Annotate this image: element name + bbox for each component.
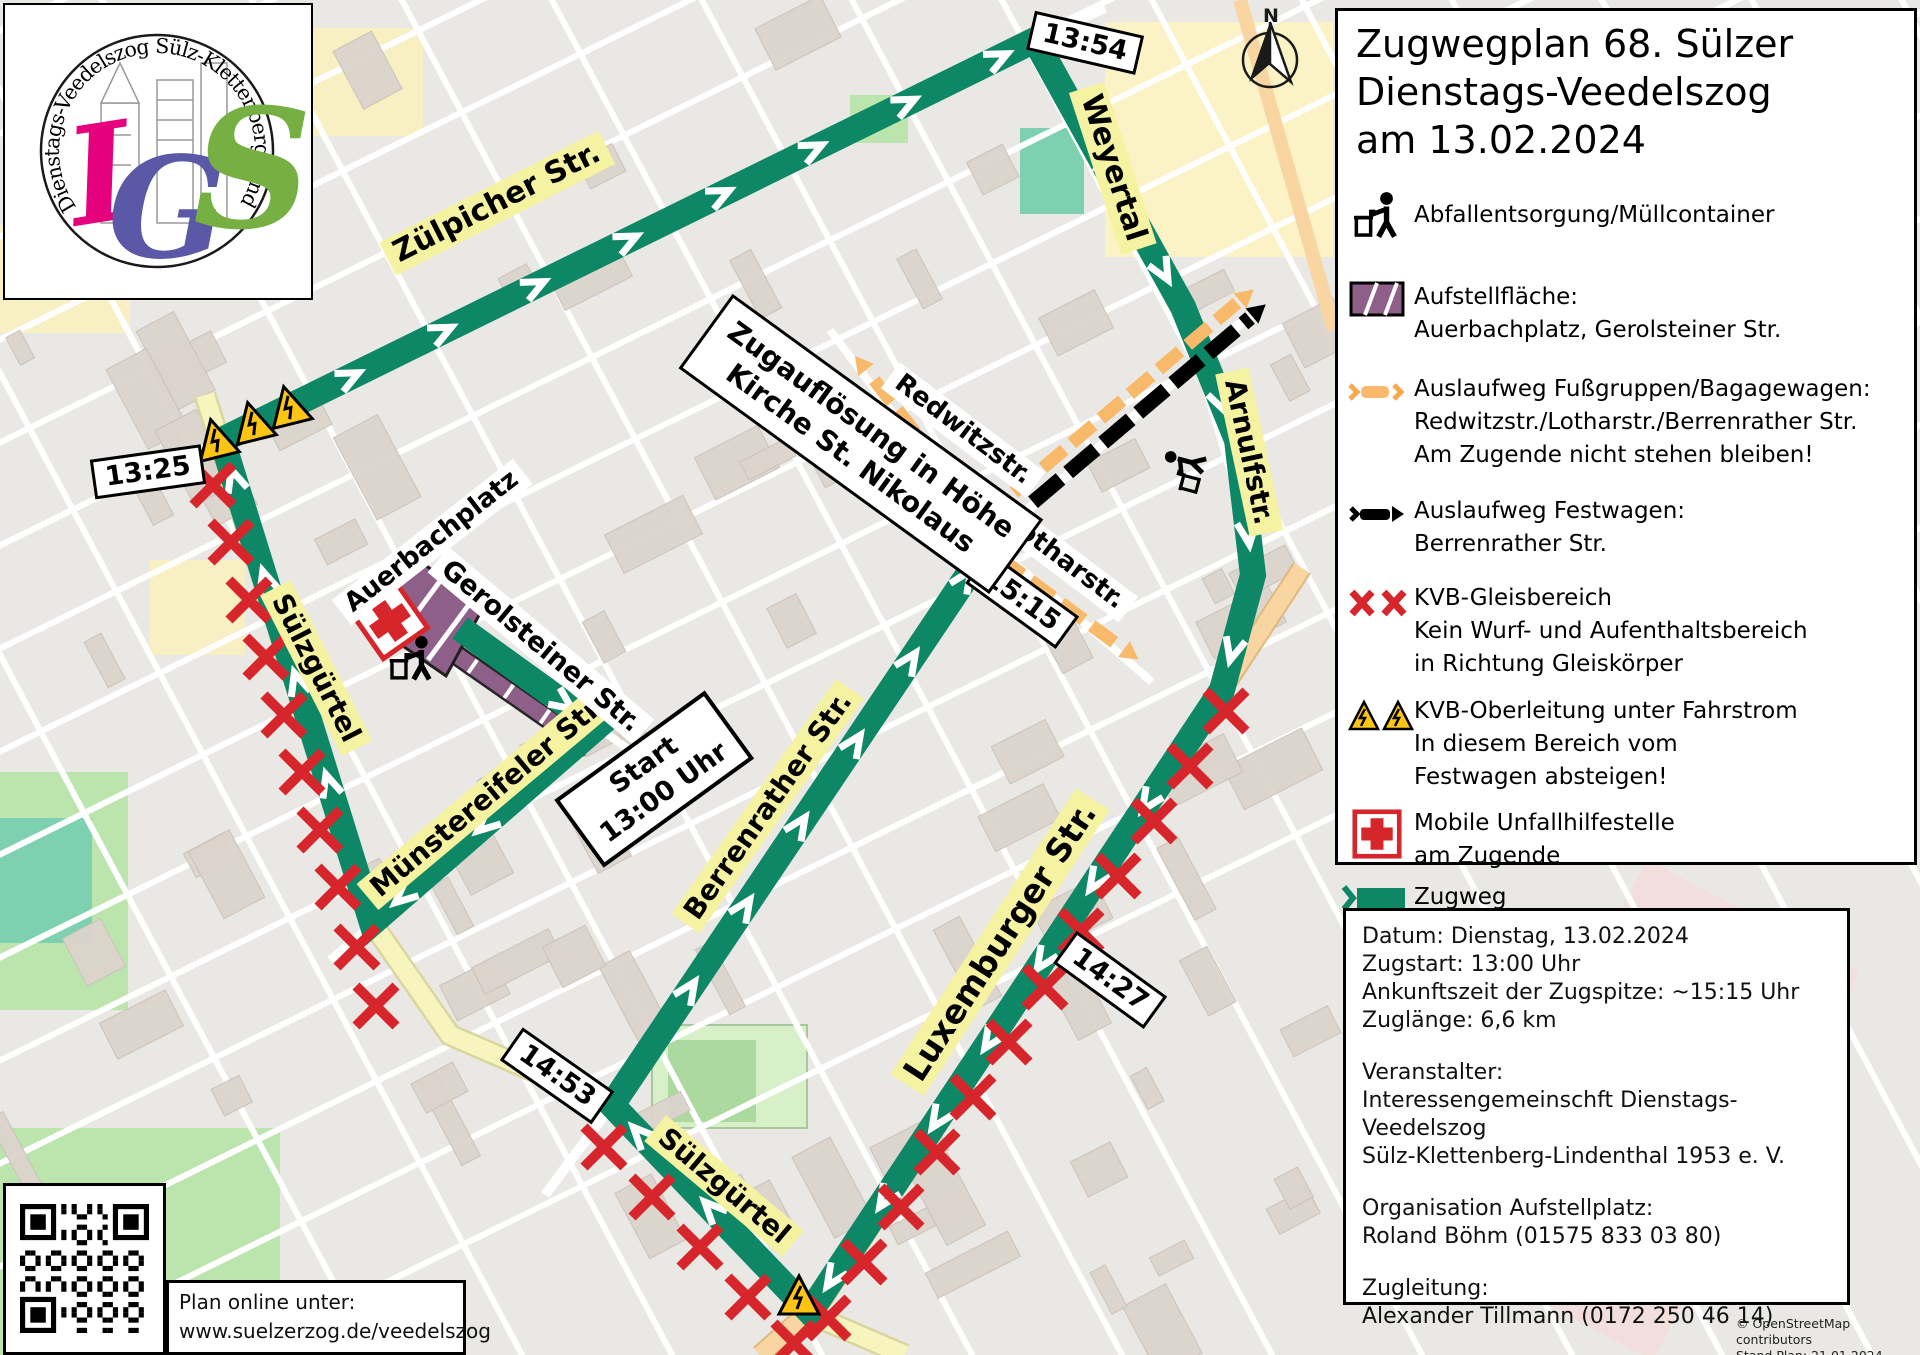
info-organizer: Veranstalter: Interessengemeinschft Dien… bbox=[1362, 1059, 1831, 1171]
info-staging-contact: Organisation Aufstellplatz: Roland Böhm … bbox=[1362, 1195, 1831, 1251]
legend-text: Auerbachplatz, Gerolsteiner Str. bbox=[1414, 314, 1781, 347]
info-line: Zugleitung: bbox=[1362, 1275, 1831, 1303]
staging-area-swatch bbox=[1348, 279, 1406, 323]
info-line: Zugstart: 13:00 Uhr bbox=[1362, 951, 1831, 979]
qr-code-box bbox=[3, 1183, 166, 1355]
legend-text: Aufstellfläche: bbox=[1414, 281, 1781, 314]
info-panel: Datum: Dienstag, 13.02.2024 Zugstart: 13… bbox=[1343, 908, 1850, 1305]
legend-text: Abfallentsorgung/Müllcontainer bbox=[1414, 199, 1774, 232]
logo-letter-s: S bbox=[193, 72, 311, 266]
info-line: Datum: Dienstag, 13.02.2024 bbox=[1362, 923, 1831, 951]
qr-code bbox=[20, 1204, 149, 1333]
plan-date: Stand Plan: 21.01.2024 bbox=[1736, 1348, 1920, 1355]
info-line: Ankunftszeit der Zugspitze: ~15:15 Uhr bbox=[1362, 979, 1831, 1007]
parade-route-plan: N Zülpicher Str. Weyertal Arnulfstr. Sül… bbox=[0, 0, 1920, 1355]
svg-text:N: N bbox=[1263, 5, 1279, 27]
info-line: Roland Böhm (01575 833 03 80) bbox=[1362, 1223, 1831, 1251]
club-logo: Dienstags-Veedelszog Sülz-Klettenberg-Li… bbox=[3, 3, 313, 300]
orange-exit-arrow bbox=[1348, 379, 1406, 409]
online-plan-url: www.suelzerzog.de/veedelszog bbox=[179, 1317, 453, 1346]
waste-disposal-icon bbox=[1348, 189, 1406, 247]
legend-text: Am Zugende nicht stehen bleiben! bbox=[1414, 439, 1871, 472]
legend-text: Redwitzstr./Lotharstr./Berrenrather Str. bbox=[1414, 406, 1871, 439]
legend-text: Festwagen absteigen! bbox=[1414, 761, 1798, 794]
osm-attribution: © OpenStreetMap contributors bbox=[1736, 1316, 1920, 1348]
plan-title-line3: am 13.02.2024 bbox=[1356, 117, 1793, 165]
legend-text: Auslaufweg Fußgruppen/Bagagewagen: bbox=[1414, 373, 1871, 406]
legend-text: in Richtung Gleiskörper bbox=[1414, 648, 1808, 681]
plan-title-line1: Zugwegplan 68. Sülzer bbox=[1356, 21, 1793, 69]
legend-text: KVB-Gleisbereich bbox=[1414, 582, 1808, 615]
high-voltage-triangles bbox=[1348, 699, 1406, 737]
red-x-marks bbox=[1348, 586, 1406, 624]
legend-panel: Zugwegplan 68. Sülzer Dienstags-Veedelsz… bbox=[1335, 8, 1917, 865]
legend-text: KVB-Oberleitung unter Fahrstrom bbox=[1414, 695, 1798, 728]
info-line: Sülz-Klettenberg-Lindenthal 1953 e. V. bbox=[1362, 1143, 1831, 1171]
black-exit-arrow bbox=[1348, 501, 1406, 531]
online-plan-label: Plan online unter: bbox=[179, 1288, 453, 1317]
info-dates: Datum: Dienstag, 13.02.2024 Zugstart: 13… bbox=[1362, 923, 1831, 1035]
legend-text: Berrenrather Str. bbox=[1414, 528, 1685, 561]
online-plan-box: Plan online unter: www.suelzerzog.de/vee… bbox=[166, 1280, 466, 1355]
legend-text: Mobile Unfallhilfestelle bbox=[1414, 807, 1675, 840]
legend-text: Auslaufweg Festwagen: bbox=[1414, 495, 1685, 528]
info-line: Organisation Aufstellplatz: bbox=[1362, 1195, 1831, 1223]
legend-text: In diesem Bereich vom bbox=[1414, 728, 1798, 761]
plan-title-line2: Dienstags-Veedelszog bbox=[1356, 69, 1793, 117]
red-cross-box bbox=[1348, 809, 1406, 863]
info-line: Veranstalter: bbox=[1362, 1059, 1831, 1087]
info-line: Zuglänge: 6,6 km bbox=[1362, 1007, 1831, 1035]
map-attribution: © OpenStreetMap contributors Stand Plan:… bbox=[1736, 1316, 1920, 1355]
plan-title: Zugwegplan 68. Sülzer Dienstags-Veedelsz… bbox=[1356, 21, 1793, 165]
legend-text: Kein Wurf- und Aufenthaltsbereich bbox=[1414, 615, 1808, 648]
info-line: Interessengemeinschft Dienstags-Veedelsz… bbox=[1362, 1087, 1831, 1143]
